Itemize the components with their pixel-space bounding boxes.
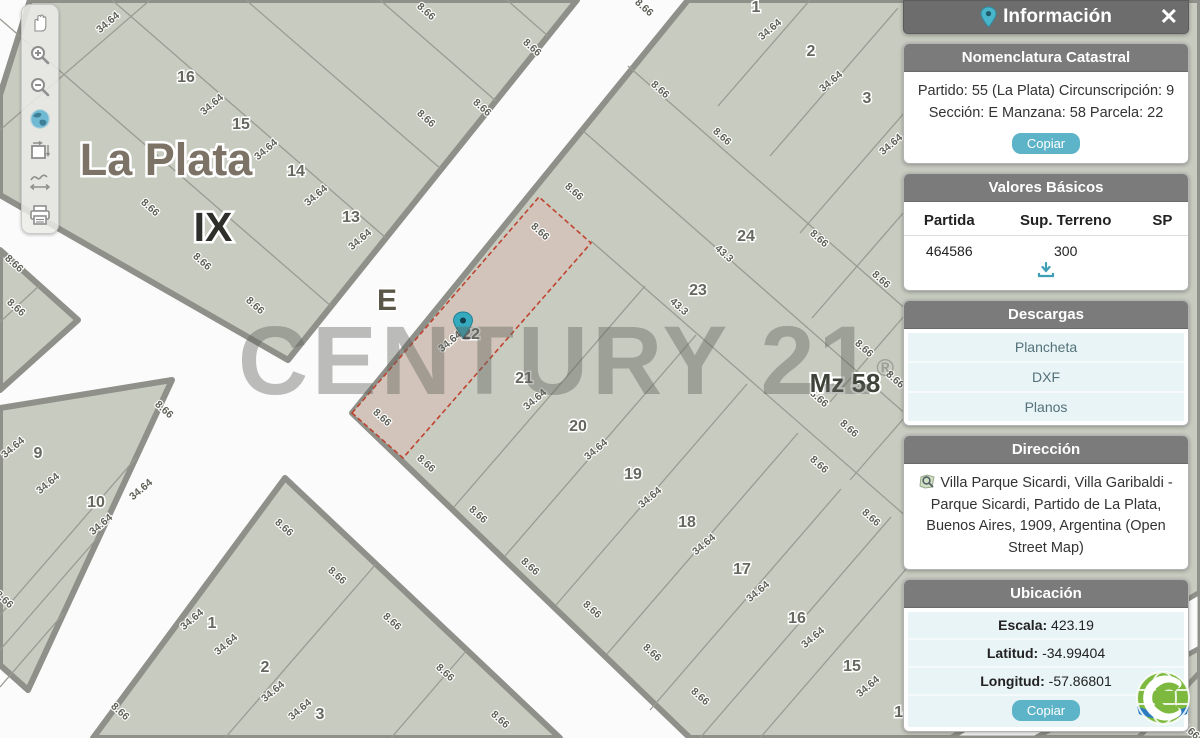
zoom-in-button[interactable] bbox=[25, 40, 55, 70]
column-partida: Partida bbox=[904, 206, 995, 236]
parcel-number: 3 bbox=[863, 90, 872, 107]
longitude-value: -57.86801 bbox=[1049, 673, 1112, 689]
info-panel-header: Información ✕ bbox=[903, 0, 1189, 34]
table-row: 464586 300 bbox=[904, 235, 1188, 261]
pan-tool-button[interactable] bbox=[25, 8, 55, 38]
measure-distance-icon bbox=[28, 171, 52, 195]
printer-icon bbox=[28, 203, 52, 227]
value-sup-terreno: 300 bbox=[995, 235, 1137, 261]
parcel-number: 24 bbox=[737, 228, 755, 245]
measure-button[interactable] bbox=[25, 168, 55, 198]
download-link-planos[interactable]: Planos bbox=[908, 393, 1184, 421]
zoom-out-button[interactable] bbox=[25, 72, 55, 102]
copy-nomenclatura-button[interactable]: Copiar bbox=[1012, 133, 1080, 154]
valores-card: Valores Básicos Partida Sup. Terreno SP … bbox=[903, 173, 1189, 291]
parcel-number: 9 bbox=[34, 445, 43, 462]
manzana-label: Mz 58 bbox=[810, 368, 881, 398]
column-sup-terreno: Sup. Terreno bbox=[995, 206, 1137, 236]
descargas-header: Descargas bbox=[904, 301, 1188, 329]
direccion-card: Dirección Villa Parque Sicardi, Villa Ga… bbox=[903, 435, 1189, 570]
parcel-number: 1 bbox=[752, 0, 761, 16]
nomenclatura-line1: Partido: 55 (La Plata) Circunscripción: … bbox=[910, 80, 1182, 102]
latitude-value: -34.99404 bbox=[1042, 645, 1105, 661]
close-icon[interactable]: ✕ bbox=[1160, 3, 1178, 31]
column-sp: SP bbox=[1137, 206, 1188, 236]
info-panel: Información ✕ Nomenclatura Catastral Par… bbox=[903, 0, 1189, 732]
nomenclatura-card: Nomenclatura Catastral Partido: 55 (La P… bbox=[903, 43, 1189, 164]
nomenclatura-line2: Sección: E Manzana: 58 Parcela: 22 bbox=[910, 102, 1182, 124]
parcel-number: 20 bbox=[569, 418, 587, 435]
parcel-number: 13 bbox=[342, 209, 360, 226]
section-label: E bbox=[377, 284, 397, 317]
parcel-number: 16 bbox=[177, 69, 195, 86]
longitude-label: Longitud: bbox=[980, 673, 1045, 689]
value-sp bbox=[1137, 235, 1188, 261]
parcel-number: 10 bbox=[87, 494, 105, 511]
panel-title: Información bbox=[1003, 6, 1112, 28]
valores-table: Partida Sup. Terreno SP 464586 300 bbox=[904, 206, 1188, 261]
parcel-number: 15 bbox=[843, 658, 861, 675]
city-label: La Plata bbox=[80, 134, 254, 185]
scale-value: 423.19 bbox=[1051, 617, 1094, 633]
zoom-out-icon bbox=[28, 75, 52, 99]
parcel-number: 14 bbox=[287, 163, 305, 180]
direccion-text: Villa Parque Sicardi, Villa Garibaldi - … bbox=[926, 475, 1172, 556]
map-toolbar bbox=[21, 4, 59, 234]
gis-globe-logo bbox=[1133, 670, 1195, 733]
parcel-number: 1 bbox=[208, 615, 217, 632]
copy-coordinates-button[interactable]: Copiar bbox=[1012, 700, 1080, 721]
direccion-header: Dirección bbox=[904, 436, 1188, 464]
download-link-dxf[interactable]: DXF bbox=[908, 363, 1184, 393]
parcel-number: 2 bbox=[261, 659, 270, 676]
latitude-label: Latitud: bbox=[987, 645, 1038, 661]
select-extent-icon bbox=[28, 139, 52, 163]
extent-select-button[interactable] bbox=[25, 136, 55, 166]
scale-label: Escala: bbox=[998, 617, 1047, 633]
nomenclatura-header: Nomenclatura Catastral bbox=[904, 44, 1188, 72]
download-icon[interactable] bbox=[1037, 262, 1055, 278]
descargas-card: Descargas Plancheta DXF Planos bbox=[903, 300, 1189, 426]
scale-row: Escala: 423.19 bbox=[908, 612, 1184, 640]
parcel-number: 19 bbox=[624, 466, 642, 483]
parcel-number: 2 bbox=[807, 43, 816, 60]
parcel-number: 16 bbox=[788, 610, 806, 627]
parcel-number: 21 bbox=[515, 370, 533, 387]
zoom-in-icon bbox=[28, 43, 52, 67]
parcel-number: 15 bbox=[232, 116, 250, 133]
latitude-row: Latitud: -34.99404 bbox=[908, 640, 1184, 668]
value-partida: 464586 bbox=[904, 235, 995, 261]
ubicacion-header: Ubicación bbox=[904, 580, 1188, 608]
map-search-icon bbox=[919, 474, 936, 489]
app-window: 34.6434.6434.6434.6434.648.668.668.668.6… bbox=[0, 0, 1200, 738]
print-button[interactable] bbox=[25, 200, 55, 230]
parcel-number: 3 bbox=[316, 706, 325, 723]
circunscripcion-label: IX bbox=[194, 204, 233, 250]
full-extent-button[interactable] bbox=[25, 104, 55, 134]
download-link-plancheta[interactable]: Plancheta bbox=[908, 333, 1184, 363]
valores-header: Valores Básicos bbox=[904, 174, 1188, 202]
map-pin-icon bbox=[980, 6, 997, 28]
globe-icon bbox=[28, 107, 52, 131]
parcel-number: 18 bbox=[678, 514, 696, 531]
hand-icon bbox=[28, 11, 52, 35]
parcel-number: 23 bbox=[689, 282, 707, 299]
parcel-number: 17 bbox=[733, 561, 751, 578]
